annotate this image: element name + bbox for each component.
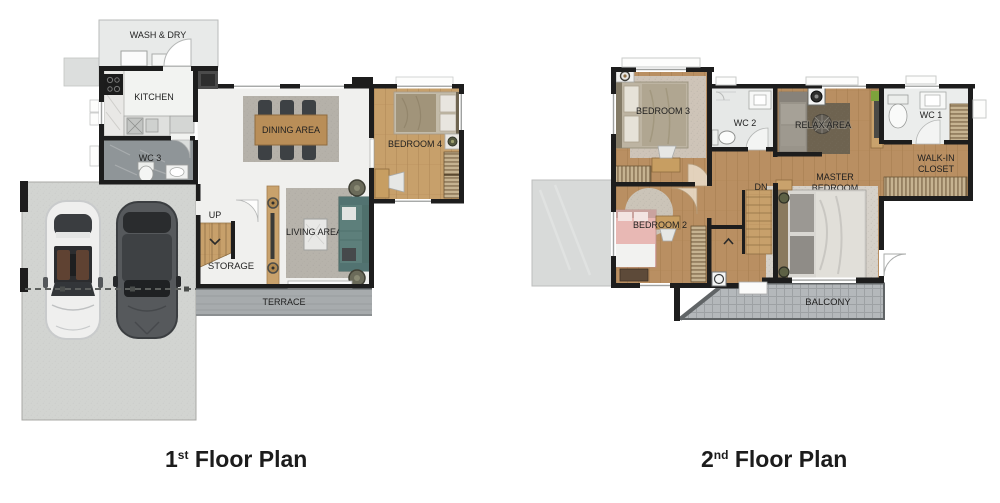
svg-text:UP: UP — [209, 210, 222, 220]
svg-text:BALCONY: BALCONY — [805, 297, 851, 308]
svg-text:RELAX AREA: RELAX AREA — [795, 120, 851, 130]
svg-text:STORAGE: STORAGE — [208, 261, 254, 272]
svg-text:WC 3: WC 3 — [139, 153, 162, 163]
svg-text:WC 1: WC 1 — [920, 110, 943, 120]
svg-text:TERRACE: TERRACE — [262, 297, 305, 307]
svg-text:DN: DN — [755, 182, 768, 192]
svg-text:WC 2: WC 2 — [734, 118, 757, 128]
svg-text:WALK-IN: WALK-IN — [917, 153, 954, 163]
svg-text:LIVING AREA: LIVING AREA — [286, 227, 342, 237]
svg-text:DINING AREA: DINING AREA — [262, 125, 320, 135]
svg-text:WASH & DRY: WASH & DRY — [130, 30, 187, 40]
svg-text:BEDROOM 2: BEDROOM 2 — [633, 220, 687, 230]
svg-text:BEDROOM 3: BEDROOM 3 — [636, 106, 690, 116]
svg-text:MASTER: MASTER — [816, 172, 854, 182]
svg-text:CLOSET: CLOSET — [918, 164, 955, 174]
svg-text:KITCHEN: KITCHEN — [134, 92, 174, 102]
svg-text:BEDROOM 4: BEDROOM 4 — [388, 139, 442, 149]
